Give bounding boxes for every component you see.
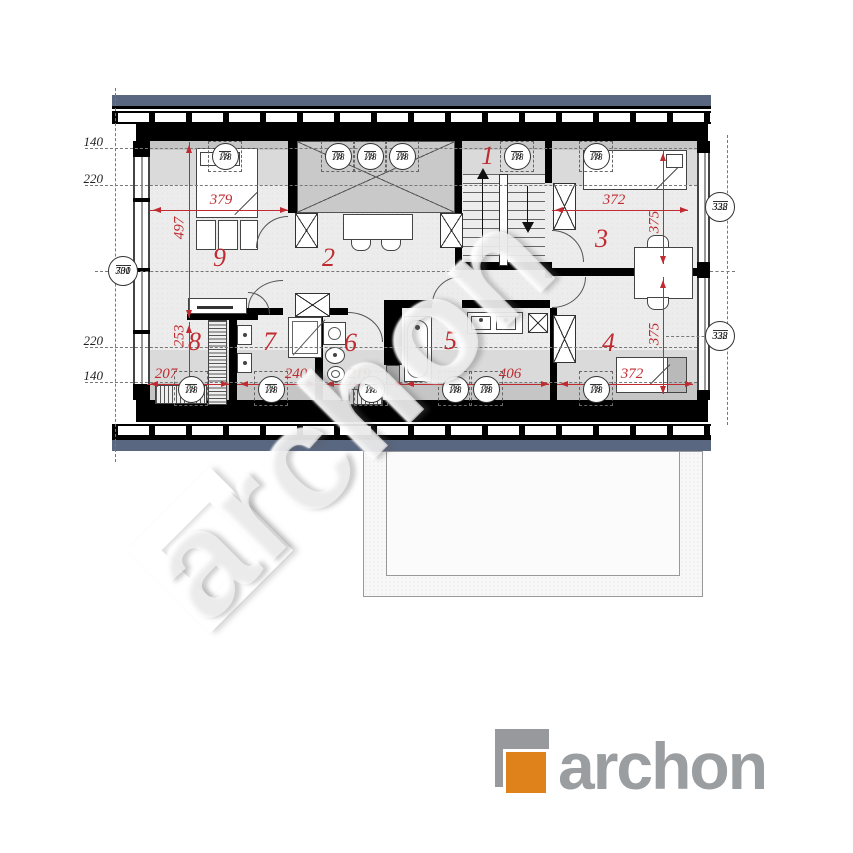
chimney-shaft	[295, 213, 318, 248]
window-height-value: 118	[365, 384, 378, 395]
roof-window-size-badge: 78118	[583, 143, 610, 170]
dimension-arrow	[680, 207, 691, 213]
dining-table	[343, 214, 413, 240]
window-mullion	[133, 330, 150, 334]
room-number-3: 3	[595, 224, 608, 254]
room-number-8: 8	[188, 327, 201, 357]
roof-window-size-badge: 78118	[442, 376, 469, 403]
window-height-value: 118	[185, 384, 198, 395]
ceiling-height-label: 140	[84, 134, 104, 150]
dimension-arrow	[660, 277, 666, 288]
exterior-wall-top	[136, 124, 708, 141]
room-number-6: 6	[344, 328, 357, 358]
room-number-1: 1	[481, 141, 494, 171]
dimension-arrow	[221, 381, 232, 387]
dimension-line	[557, 384, 693, 385]
terrace-outline-inner	[386, 451, 680, 576]
dimension-label: 240	[285, 366, 308, 383]
stair-walkline-up	[482, 178, 483, 258]
rafter-row-top	[112, 111, 711, 124]
bed-headboard	[667, 357, 687, 393]
roof-edge-band-bottom	[112, 440, 711, 451]
wall-chunk	[697, 141, 710, 153]
rafter-row-bottom	[112, 424, 711, 437]
grid-line-right	[727, 135, 728, 425]
dimension-arrow	[186, 142, 192, 153]
window-height-value: 118	[590, 151, 603, 162]
dimension-line	[552, 210, 688, 211]
wall-chunk	[697, 262, 710, 278]
room-number-9: 9	[213, 243, 226, 273]
dimension-label: 406	[499, 366, 522, 383]
window-height-value: 118	[219, 151, 232, 162]
toilet-bowl	[331, 370, 340, 378]
roof-window-size-badge: 78118	[258, 376, 285, 403]
dimension-label: 372	[621, 366, 644, 383]
dimension-label: 219	[348, 366, 371, 383]
window-height-value: 322	[713, 201, 728, 213]
window-height-value: 118	[364, 151, 377, 162]
dimension-label: 497	[172, 217, 189, 240]
chimney-shaft	[553, 315, 576, 363]
bathtub-drain	[415, 325, 420, 330]
archon-watermark-logo-square	[126, 467, 293, 634]
dimension-line	[663, 150, 664, 264]
dimension-line	[189, 142, 190, 318]
wall-chunk	[697, 390, 710, 400]
pillow	[666, 154, 683, 168]
wall-chunk	[133, 141, 150, 157]
wall	[384, 308, 402, 365]
window-height-value: 118	[480, 384, 493, 395]
window-mullion	[133, 198, 150, 202]
roof-window-size-badge: 78118	[178, 376, 205, 403]
washer-drum	[328, 327, 341, 340]
roof-window-size-badge: 78118	[357, 143, 384, 170]
archon-logo-square-orange	[506, 752, 546, 793]
dimension-arrow	[552, 207, 563, 213]
roof-edge-band-top	[112, 95, 711, 106]
dimension-line	[150, 210, 288, 211]
dimension-arrow	[403, 381, 414, 387]
sink-drain	[333, 353, 337, 357]
wall	[455, 141, 462, 270]
roof-window-size-badge: 78118	[212, 143, 239, 170]
dimension-arrow	[660, 386, 666, 397]
room-number-2: 2	[322, 243, 335, 273]
room-number-7: 7	[263, 327, 276, 357]
shower-tray	[292, 321, 318, 354]
dressing-table-shelf	[197, 306, 233, 309]
dimension-arrow	[150, 207, 161, 213]
dimension-arrow	[685, 381, 696, 387]
dimension-label: 372	[603, 192, 626, 209]
window-height-value: 331	[116, 265, 131, 277]
ceiling-height-label: 220	[84, 171, 104, 187]
dimension-arrow	[280, 207, 291, 213]
roof-window-size-badge: 78118	[325, 143, 352, 170]
basin-drain	[243, 361, 247, 365]
wall	[384, 300, 432, 308]
dimension-arrow	[307, 381, 318, 387]
window-level-marker: 338322	[705, 321, 735, 351]
dimension-label: 207	[155, 366, 178, 383]
roof-window-size-badge: 78118	[504, 143, 531, 170]
dimension-label: 379	[210, 192, 233, 209]
dimension-arrow	[237, 381, 248, 387]
roof-window-size-badge: 78118	[389, 143, 416, 170]
dimension-label: 253	[172, 325, 189, 348]
vent-shaft	[528, 313, 548, 333]
sink-tap	[504, 318, 508, 322]
window-height-value: 322	[713, 330, 728, 342]
window-level-marker: 700331	[108, 256, 138, 286]
wall	[545, 262, 552, 278]
wall	[229, 318, 237, 400]
clothes-rail	[208, 320, 227, 405]
dimension-arrow	[541, 381, 552, 387]
window-height-value: 118	[396, 151, 409, 162]
floor-plan-canvas: archon archon 12345678937937220724021940…	[0, 0, 853, 853]
window-height-value: 118	[265, 384, 278, 395]
stair-down-arrow	[522, 222, 534, 233]
window-height-value: 118	[449, 384, 462, 395]
dimension-arrow	[186, 310, 192, 321]
roof-window-size-badge: 78118	[473, 376, 500, 403]
section-line	[710, 271, 735, 272]
archon-logo-text: archon	[558, 728, 766, 804]
wall	[462, 300, 550, 308]
chimney-shaft	[295, 293, 330, 317]
stair-handrail	[499, 174, 508, 266]
dimension-arrow	[557, 381, 568, 387]
dimension-label: 375	[647, 211, 664, 234]
wall	[288, 141, 297, 213]
window-level-marker: 338322	[705, 192, 735, 222]
section-line	[95, 271, 455, 272]
room-number-4: 4	[602, 328, 615, 358]
dimension-arrow	[660, 150, 666, 161]
room-number-5: 5	[444, 326, 457, 356]
chimney-shaft	[440, 213, 463, 248]
ceiling-height-label: 140	[84, 368, 104, 384]
window-height-value: 118	[590, 384, 603, 395]
ceiling-height-label: 220	[84, 333, 104, 349]
stair-walkline-down	[527, 186, 528, 224]
dimension-arrow	[323, 381, 334, 387]
dimension-arrow	[660, 256, 666, 267]
basin-drain	[243, 333, 247, 337]
window-height-value: 118	[511, 151, 524, 162]
height-line-220-top	[85, 185, 697, 186]
dimension-label: 375	[647, 323, 664, 346]
roof-window-size-badge: 78118	[583, 376, 610, 403]
window-height-value: 118	[332, 151, 345, 162]
roof-line-top	[112, 106, 711, 109]
chair	[647, 297, 669, 310]
sink-tap	[479, 318, 483, 322]
